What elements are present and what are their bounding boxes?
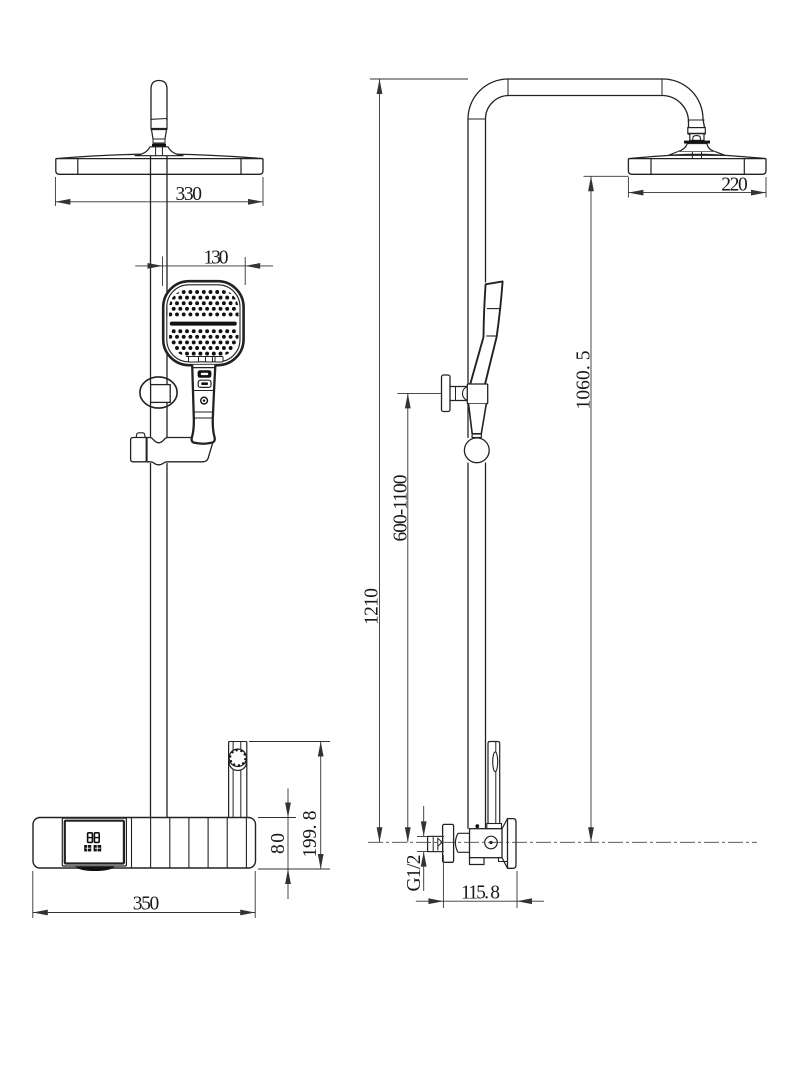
svg-text:199. 8: 199. 8 (300, 811, 321, 858)
svg-text:1210: 1210 (362, 588, 383, 625)
svg-text:80: 80 (268, 833, 289, 854)
svg-text:G1/2: G1/2 (404, 855, 425, 892)
svg-text:350: 350 (133, 894, 160, 915)
svg-text:330: 330 (175, 184, 202, 205)
svg-text:600-1100: 600-1100 (390, 475, 411, 542)
svg-text:115. 8: 115. 8 (461, 882, 500, 903)
svg-text:130: 130 (204, 248, 229, 269)
svg-text:220: 220 (721, 174, 748, 195)
svg-text:1060. 5: 1060. 5 (574, 351, 595, 410)
